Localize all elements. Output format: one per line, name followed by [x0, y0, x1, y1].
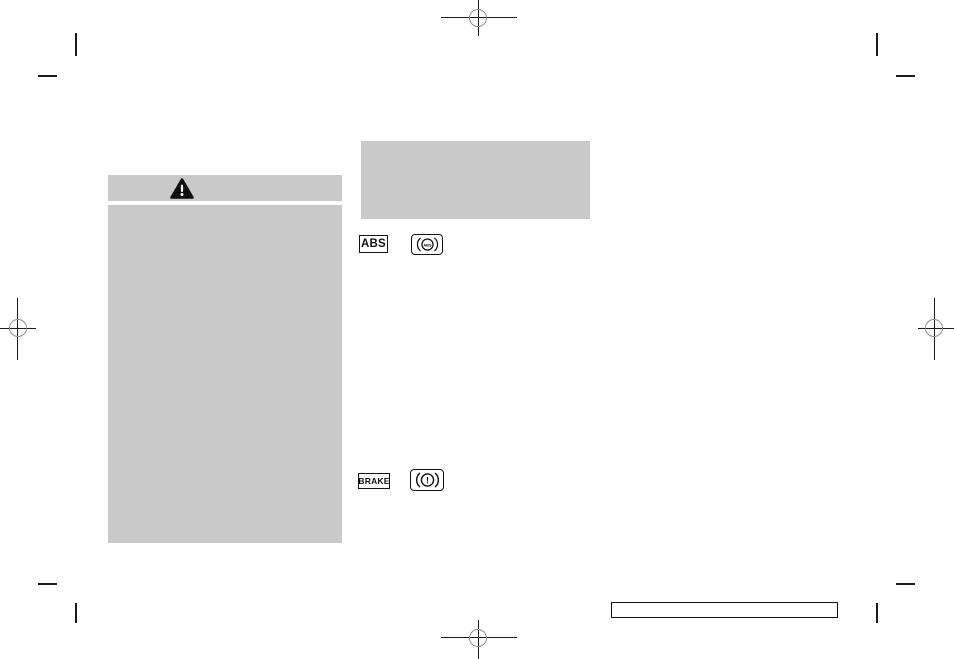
registration-ring: [925, 319, 943, 337]
registration-ring: [9, 319, 27, 337]
crop-mark-top-right-horizontal: [896, 75, 915, 77]
crop-mark-bottom-right-horizontal: [896, 583, 915, 585]
crop-mark-top-left-vertical: [75, 33, 77, 56]
section-heading-redacted-text: [361, 141, 590, 219]
abs-lamp-text: ABS: [423, 242, 432, 247]
warning-triangle-icon: [170, 178, 194, 199]
brake-indicator-label: BRAKE: [358, 476, 389, 486]
crop-mark-top-left-horizontal: [38, 75, 57, 77]
manual-page-proof: ABS ABS BRAKE !: [0, 0, 954, 659]
crop-mark-top-right-vertical: [876, 33, 878, 56]
registration-ring: [469, 9, 487, 27]
registration-mark-left-center: [0, 298, 36, 360]
abs-indicator-label: ABS: [361, 238, 386, 250]
registration-mark-bottom-center: [441, 620, 517, 659]
brake-warning-lamp-badge: !: [410, 469, 444, 491]
abs-warning-lamp-icon: ABS: [414, 236, 441, 253]
crop-mark-bottom-right-vertical: [876, 603, 878, 623]
warning-header-bar: [108, 175, 342, 201]
brake-lamp-exclamation: !: [426, 475, 429, 485]
registration-ring: [469, 629, 487, 647]
registration-mark-top-center: [441, 0, 517, 36]
abs-warning-lamp-badge: ABS: [411, 234, 443, 255]
registration-mark-right-center: [918, 298, 954, 360]
abs-indicator-label-badge: ABS: [359, 235, 388, 253]
brake-indicator-label-badge: BRAKE: [358, 473, 390, 489]
crop-mark-bottom-left-horizontal: [38, 583, 57, 585]
warning-body-redacted-text: [108, 205, 342, 543]
crop-mark-bottom-left-vertical: [75, 603, 77, 623]
brake-warning-lamp-icon: !: [413, 471, 442, 489]
footer-page-info-box: [611, 602, 838, 618]
